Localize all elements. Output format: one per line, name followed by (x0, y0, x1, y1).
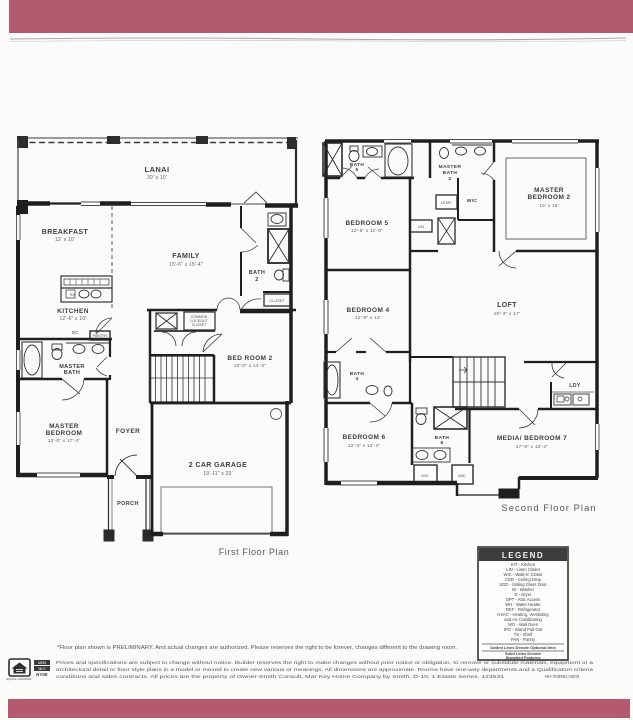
svg-text:MLS: MLS (39, 667, 47, 671)
svg-text:MASTER: MASTER (49, 423, 79, 430)
svg-text:BEDROOM 4: BEDROOM 4 (347, 307, 390, 314)
svg-text:Dotted Lines Denote Optional I: Dotted Lines Denote Optional Item (490, 645, 556, 650)
svg-text:WIC: WIC (467, 198, 478, 204)
svg-text:BED ROOM 2: BED ROOM 2 (227, 355, 272, 362)
svg-text:WIC: WIC (421, 474, 429, 478)
svg-text:conditions and sales contracts: conditions and sales contracts. All pric… (56, 674, 505, 679)
svg-text:10'-0" x 14'-0": 10'-0" x 14'-0" (234, 363, 267, 369)
svg-text:BEDROOM 6: BEDROOM 6 (343, 434, 386, 441)
svg-text:2: 2 (255, 277, 258, 283)
svg-text:KITCHEN: KITCHEN (57, 308, 89, 315)
svg-text:*Floor plan shown is PRELIMINA: *Floor plan shown is PRELIMINARY. And ac… (57, 645, 457, 651)
svg-text:LDY: LDY (569, 383, 580, 389)
svg-text:15'-6" x 15'-4": 15'-6" x 15'-4" (169, 262, 203, 268)
svg-text:12'-6" x 10': 12'-6" x 10' (60, 316, 87, 322)
svg-text:17'-8" x 12'-4": 17'-8" x 12'-4" (516, 444, 549, 450)
svg-text:12' x 10': 12' x 10' (55, 237, 75, 243)
svg-text:BEDROOM: BEDROOM (46, 430, 83, 437)
svg-text:12'-6" x 12': 12'-6" x 12' (355, 315, 381, 321)
svg-text:BATH: BATH (64, 370, 80, 376)
svg-text:RH #03581-0003: RH #03581-0003 (545, 674, 580, 679)
svg-text:12'-3" x 12'-4": 12'-3" x 12'-4" (348, 443, 381, 449)
svg-text:30' x 10': 30' x 10' (147, 175, 167, 181)
svg-text:PAN - Pantry: PAN - Pantry (511, 637, 536, 642)
svg-text:NYSE: NYSE (36, 672, 48, 677)
svg-text:LANAI: LANAI (145, 165, 170, 174)
svg-text:15' x 16': 15' x 16' (539, 203, 558, 209)
svg-text:12'-6" x 11'-0": 12'-6" x 11'-0" (351, 228, 383, 234)
svg-text:LEDR: LEDR (441, 201, 451, 205)
svg-text:LOFT: LOFT (497, 302, 517, 309)
svg-text:MEM: MEM (38, 661, 46, 665)
svg-text:DC: DC (72, 330, 79, 335)
svg-text:5: 5 (355, 167, 358, 173)
svg-text:PORCH: PORCH (117, 501, 139, 507)
svg-text:First Floor Plan: First Floor Plan (219, 547, 290, 557)
svg-text:6: 6 (440, 440, 443, 446)
svg-text:EQUAL HOUSING: EQUAL HOUSING (7, 677, 33, 681)
svg-text:2: 2 (448, 176, 451, 182)
svg-text:MASTER: MASTER (534, 187, 564, 194)
svg-text:12'-0" x 17'-4": 12'-0" x 17'-4" (48, 438, 81, 444)
svg-text:CLOSET: CLOSET (269, 299, 285, 303)
svg-text:WIC: WIC (458, 474, 466, 478)
svg-text:PANTRY: PANTRY (92, 334, 108, 338)
svg-text:RA: RA (70, 293, 75, 297)
svg-text:Second Floor Plan: Second Floor Plan (501, 503, 596, 514)
svg-text:LIN: LIN (418, 225, 424, 229)
svg-text:FOYER: FOYER (116, 428, 140, 435)
svg-text:19'-11" x 20': 19'-11" x 20' (203, 471, 233, 477)
svg-text:Prices and specifications are: Prices and specifications are subject to… (56, 660, 594, 665)
svg-text:2 CAR GARAGE: 2 CAR GARAGE (189, 462, 247, 469)
svg-text:CLOSET: CLOSET (192, 323, 207, 327)
svg-text:20'-3" x 17': 20'-3" x 17' (494, 311, 520, 317)
svg-text:LEGEND: LEGEND (502, 551, 544, 560)
svg-text:4: 4 (355, 376, 358, 382)
svg-text:BATH: BATH (249, 270, 265, 276)
svg-text:MASTER: MASTER (439, 164, 462, 170)
svg-text:BATH: BATH (443, 170, 458, 176)
svg-text:BREAKFAST: BREAKFAST (42, 229, 89, 236)
svg-text:BEDROOM 2: BEDROOM 2 (528, 194, 571, 201)
svg-text:architectural detail or floor: architectural detail or floor style plan… (56, 667, 594, 672)
svg-text:FAMILY: FAMILY (172, 253, 199, 260)
svg-text:BEDROOM 5: BEDROOM 5 (346, 220, 389, 227)
svg-text:MEDIA/ BEDROOM 7: MEDIA/ BEDROOM 7 (497, 435, 567, 442)
